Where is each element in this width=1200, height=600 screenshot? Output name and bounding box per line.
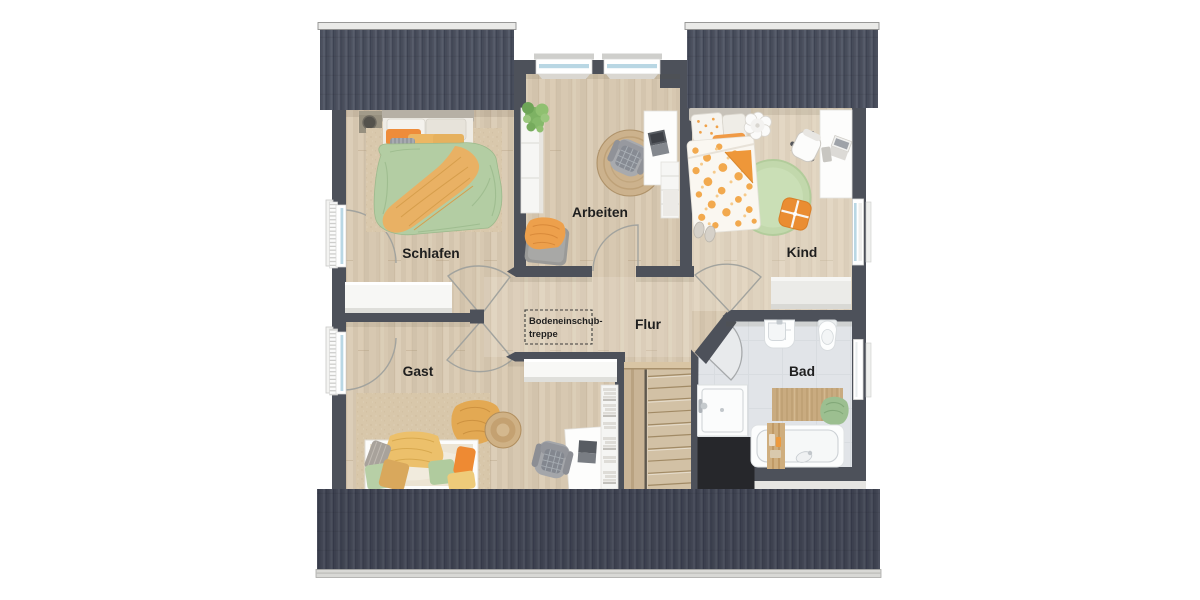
svg-text:Kind: Kind xyxy=(787,245,818,260)
svg-text:treppe: treppe xyxy=(529,328,558,339)
svg-text:Arbeiten: Arbeiten xyxy=(572,205,628,220)
svg-text:Bad: Bad xyxy=(789,364,815,379)
svg-text:Gast: Gast xyxy=(403,364,434,379)
svg-text:Schlafen: Schlafen xyxy=(402,246,460,261)
svg-text:Bodeneinschub-: Bodeneinschub- xyxy=(529,315,602,326)
svg-text:Flur: Flur xyxy=(635,317,662,332)
